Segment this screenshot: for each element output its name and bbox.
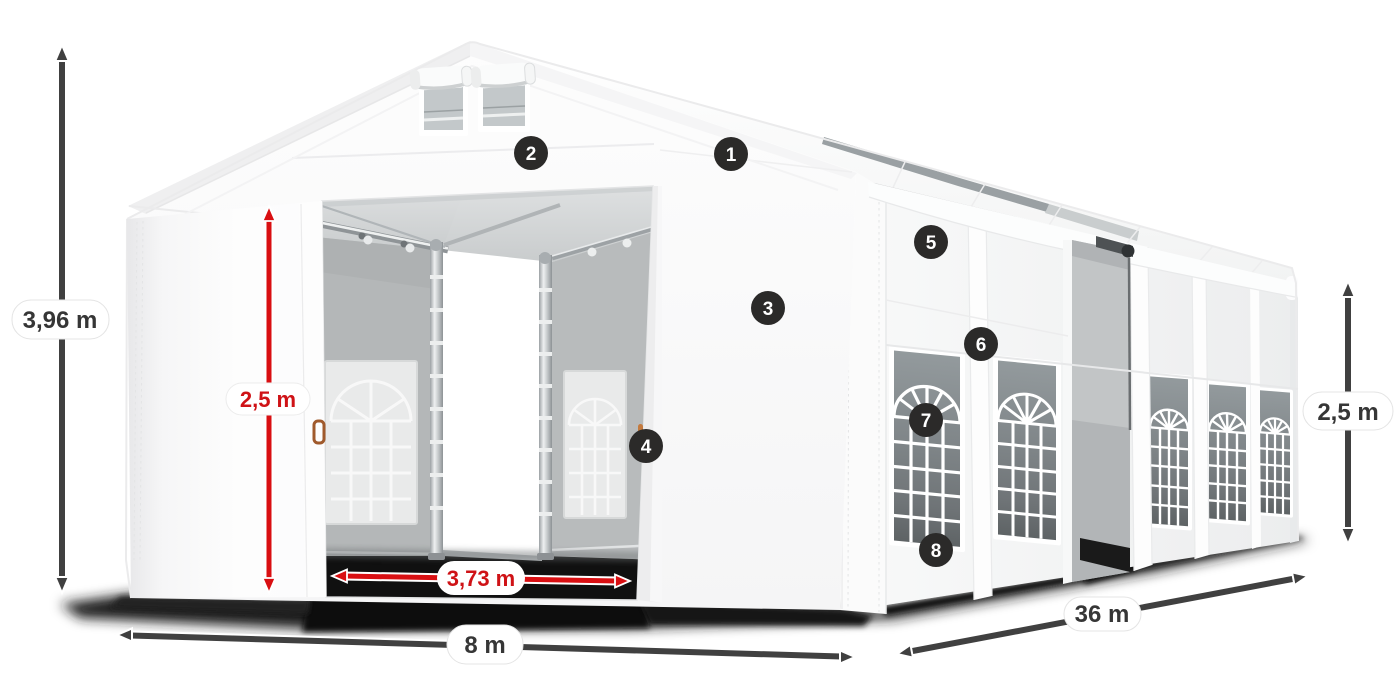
svg-text:2: 2 [526,144,537,165]
svg-text:3,96 m: 3,96 m [23,307,98,334]
svg-text:2,5 m: 2,5 m [240,387,296,412]
svg-text:3,73 m: 3,73 m [447,566,516,591]
svg-text:4: 4 [641,437,652,458]
svg-text:6: 6 [976,335,987,356]
svg-text:8: 8 [931,541,942,562]
svg-text:36 m: 36 m [1075,601,1130,628]
svg-text:8 m: 8 m [464,632,505,659]
svg-text:5: 5 [926,233,937,254]
svg-text:7: 7 [921,411,932,432]
svg-text:3: 3 [763,299,774,320]
svg-text:2,5 m: 2,5 m [1317,399,1378,426]
svg-text:1: 1 [726,145,737,166]
